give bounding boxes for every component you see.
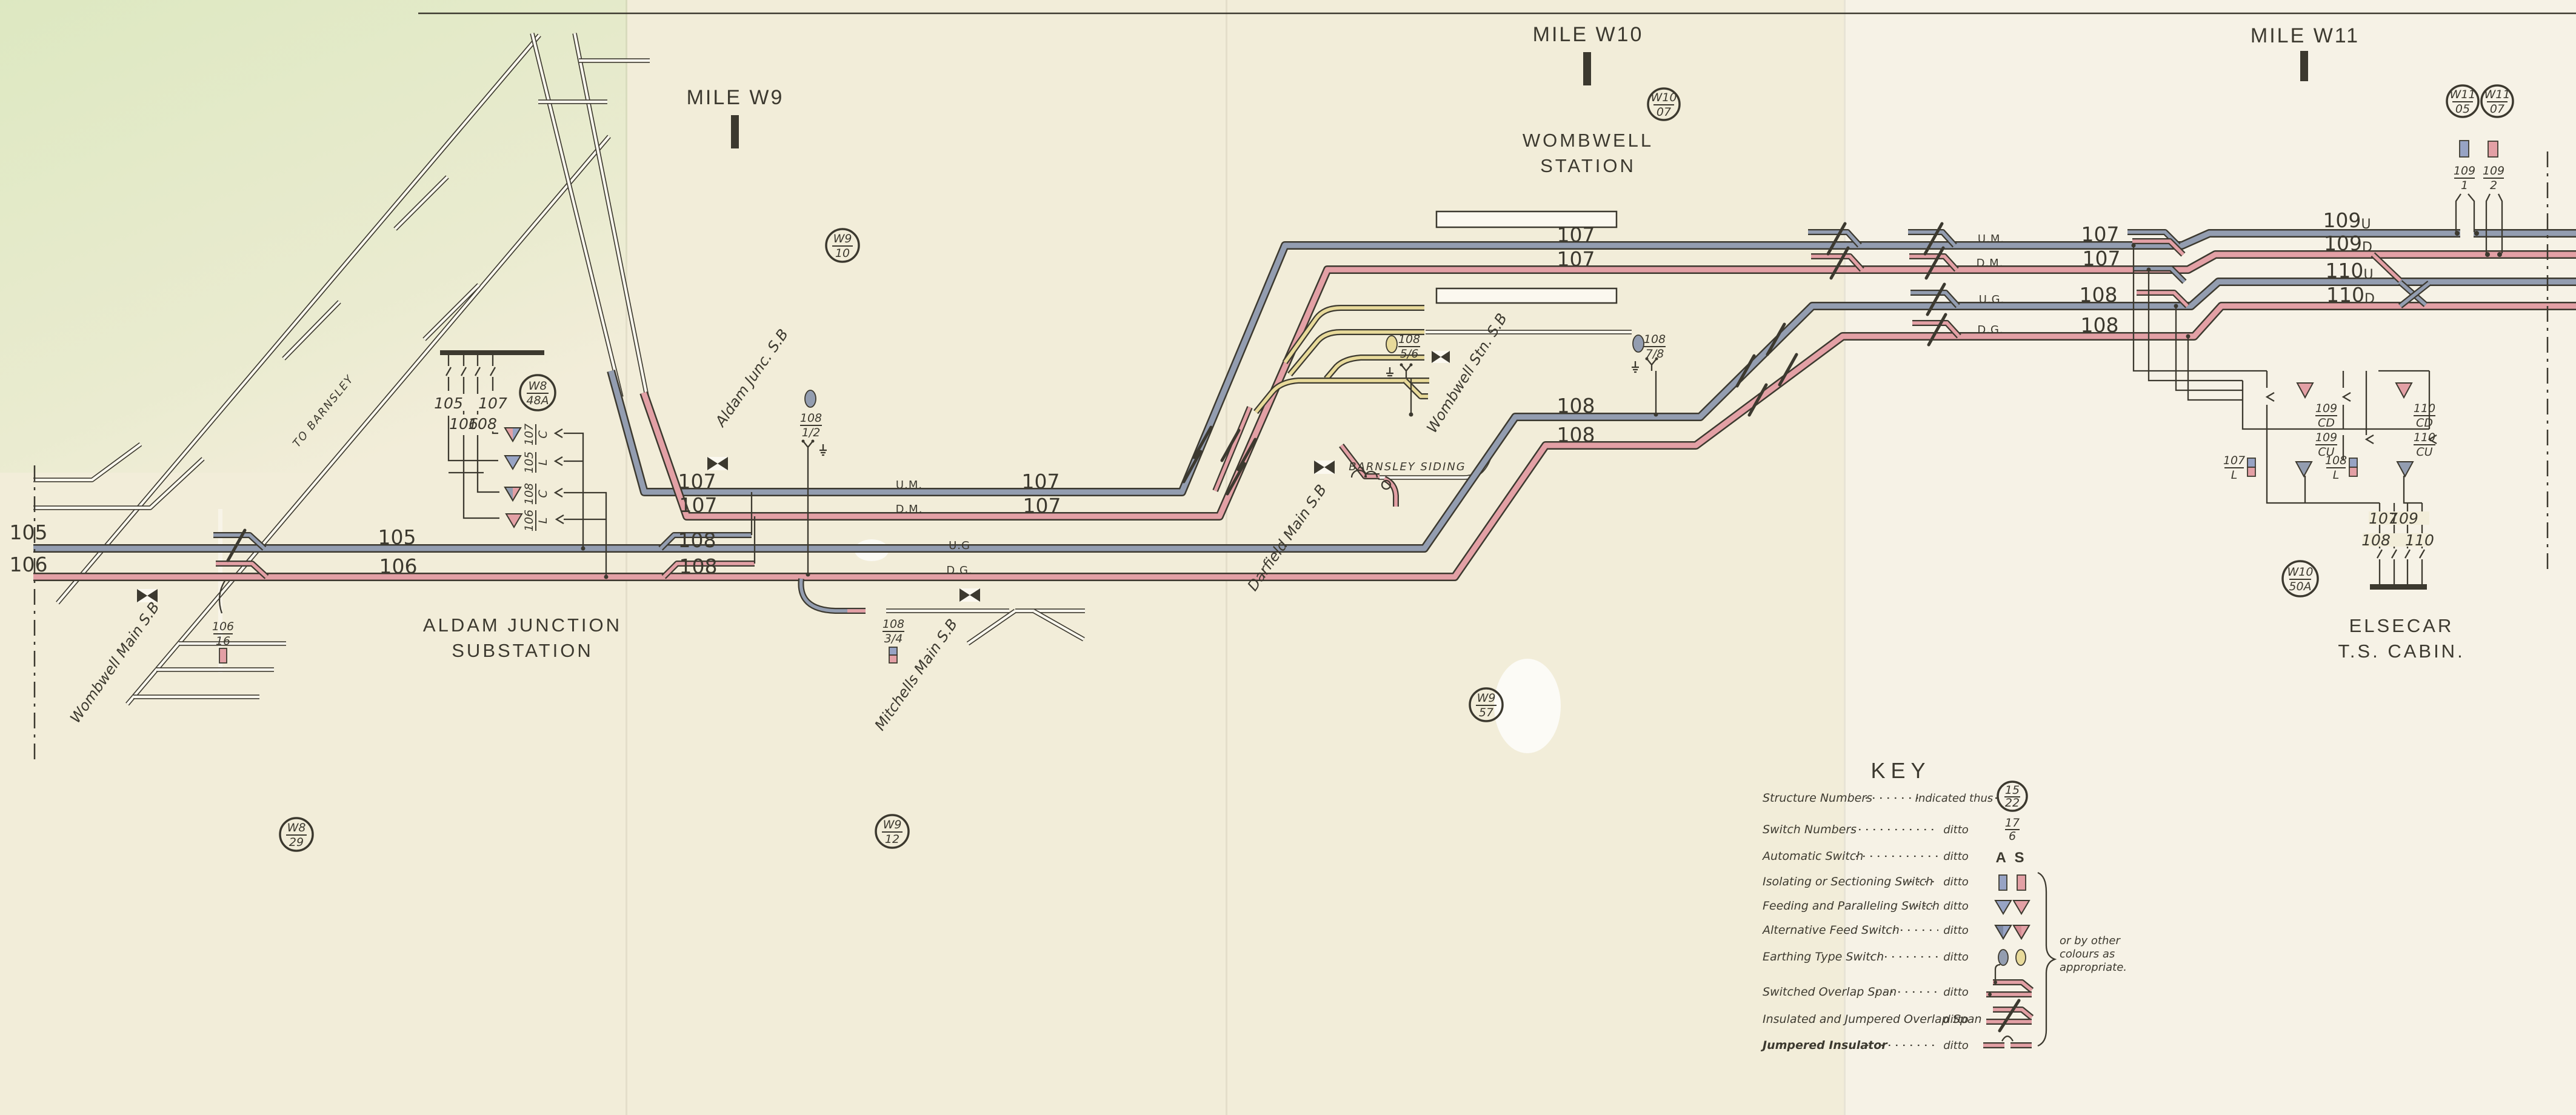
key-automatic-switch-sample: A S [1995,850,2026,866]
key-row-label: Feeding and Paralleling Switch [1763,899,1940,913]
svg-text:57: 57 [1479,706,1493,719]
key-ditto: ditto [1943,1013,1969,1026]
switch-number: 2 [2490,179,2497,192]
key-row-label: Jumpered Insulator [1760,1039,1888,1052]
key-indicated-thus: Indicated thus [1915,792,1994,805]
svg-text:W11: W11 [2450,88,2476,101]
svg-text:C: C [536,430,550,439]
isolating-switch-icon [2488,141,2498,157]
svg-text:108: 108 [2325,454,2347,467]
track-name: D.G. [1977,324,2003,336]
svg-text:L: L [536,518,550,524]
earthing-switch-icon [1998,950,2008,965]
switch-number: 110CU [2414,431,2435,459]
svg-text:CD: CD [2416,416,2433,430]
fold-line [626,0,627,1115]
svg-text:C: C [536,490,550,498]
svg-text:W10: W10 [2287,565,2314,579]
svg-text:L: L [2231,468,2238,482]
svg-text:109: 109 [2315,431,2337,444]
earthing-switch-icon [1633,335,1644,352]
switch-number: 109CD [2315,402,2337,430]
key-row-label: Structure Numbers [1763,791,1872,805]
key-title: KEY [1870,758,1930,783]
isolating-switch-icon [2349,467,2357,476]
isolating-switch-icon [219,648,227,663]
key-row-label: Automatic Switch [1761,850,1863,863]
svg-text:W8: W8 [287,821,306,834]
signalbox-icon [137,589,158,602]
switch-number: 7/8 [1646,347,1664,361]
switch-number: 108 [883,617,904,631]
substation-name: SUBSTATION [452,640,593,661]
signalbox-icon [707,457,728,470]
track-name: U.M. [1978,233,2004,245]
track-number: 106 [10,553,48,576]
substation-feeder-label: 107 [478,394,507,412]
busbar [2370,584,2427,590]
track-name: D.M. [1977,257,2004,270]
isolating-switch-icon [2017,875,2026,890]
svg-text:L: L [2333,468,2340,482]
svg-text:107: 107 [522,424,536,445]
key-ditto: ditto [1943,876,1969,888]
switch-108-12: 108 1/2 [800,411,822,439]
milepost-label: MILE W11 [2251,24,2360,47]
key-note: appropriate. [2060,961,2127,974]
electrification-diagram: 105 107 106 108 107C 105L 108C 106L 106 [0,0,2576,1115]
svg-text:15: 15 [2005,784,2020,797]
key-ditto: ditto [1943,824,1969,836]
isolating-switch-icon [889,647,897,655]
switch-number: 16 [216,634,230,648]
track-number: 108 [679,554,718,578]
earthing-switch-icon [2016,950,2026,965]
track-name: U.M. [896,479,923,491]
track-number: 108 [1557,394,1595,418]
switch-number: 109 [2454,164,2475,178]
track-number: 106 [379,554,418,578]
svg-text:110: 110 [2414,402,2435,415]
svg-text:W10: W10 [1651,91,1677,104]
svg-text:10: 10 [835,247,850,260]
fold-line [1226,0,1227,1115]
milepost-label: MILE W10 [1533,23,1644,46]
track-number: 107 [1023,494,1061,518]
paper-damage-blob [1494,659,1561,753]
track-name: D.G. [946,564,972,577]
key-ditto: ditto [1943,986,1969,999]
switch-108-78: 108 7/8 [1644,333,1666,361]
track-number: 108 [2080,283,2118,307]
track-number: 108 [2081,313,2119,337]
cabin-feeder-label: 109 [2389,510,2418,527]
isolating-switch-icon [2349,458,2357,467]
isolating-switch-icon [1999,875,2007,890]
cabin-name: ELSECAR [2349,615,2454,636]
key-note: colours as [2060,948,2115,960]
svg-text:50A: 50A [2289,580,2311,593]
substation-feeder-label: 105 [434,394,463,412]
switch-number: 1/2 [802,426,821,439]
track-number: 107 [2081,222,2120,246]
svg-text:W9: W9 [1477,691,1496,705]
svg-text:W9: W9 [833,232,852,245]
svg-text:05: 05 [2455,102,2470,116]
barnsley-siding-label: BARNSLEY SIDING [1349,461,1466,473]
key-row-label: Switch Numbers [1763,823,1857,836]
signalbox-icon [1432,351,1450,363]
cabin-feeder-label: 108 [2361,531,2391,549]
svg-text:29: 29 [289,836,304,849]
track-number: 107 [678,470,716,493]
cabin-name: T.S. CABIN. [2338,641,2464,662]
key-note: or by other [2060,934,2121,947]
svg-text:106: 106 [522,510,536,531]
switch-number: 1 [2461,179,2468,192]
isolating-switch-icon [2247,467,2255,476]
milepost-tick [731,115,739,148]
track-number: 107 [1557,223,1595,247]
svg-text:17: 17 [2005,816,2020,830]
switch-number: 5/6 [1400,347,1419,361]
switch-number: 108 [1398,333,1420,346]
svg-text:108: 108 [522,483,536,505]
busbar [440,350,544,355]
substation-name: ALDAM JUNCTION [423,614,622,636]
track-number: 107 [2083,247,2121,270]
milepost-label: MILE W9 [687,86,784,109]
substation-feeder-label: 108 [468,415,497,433]
isolating-switch-icon [2247,458,2255,467]
milepost-tick [2300,51,2308,81]
svg-text:07: 07 [2490,102,2504,116]
svg-text:107: 107 [2223,454,2245,467]
switch-number: 106 [212,620,234,633]
switch-number: 108 [800,411,822,425]
svg-text:CD: CD [2318,416,2335,430]
switch-number: 3/4 [884,632,903,645]
station-name: STATION [1540,155,1636,176]
fold-line [1844,0,1846,1115]
isolating-switch-icon [889,655,897,663]
svg-text:48A: 48A [526,394,549,407]
diagram-canvas: 105 107 106 108 107C 105L 108C 106L 106 [0,0,2576,1115]
switch-number: 109 [2483,164,2504,178]
key-row-label: Earthing Type Switch [1763,950,1884,964]
svg-text:110: 110 [2414,431,2435,444]
svg-text:W9: W9 [883,818,902,831]
key-ditto: ditto [1943,1039,1969,1052]
cabin-feeder-label: 110 [2405,531,2434,549]
svg-text:12: 12 [885,833,899,846]
svg-text:W11: W11 [2484,88,2511,101]
svg-text:W8: W8 [529,379,547,393]
svg-text:105: 105 [522,451,536,473]
svg-text:L: L [536,459,550,466]
key-ditto: ditto [1943,924,1969,937]
signalbox-icon [959,588,980,602]
track-number: 107 [1557,247,1595,271]
key-ditto: ditto [1943,850,1969,863]
switch-number: 110CD [2414,402,2435,430]
svg-text:6: 6 [2009,830,2016,843]
key-ditto: ditto [1943,900,1969,913]
track-number: 108 [1557,423,1595,447]
track-number: 105 [10,521,48,544]
track-name: U.G [949,539,970,552]
isolating-switch-icon [2460,141,2469,157]
station-platform [1436,288,1617,303]
earthing-switch-icon [1386,336,1397,353]
track-name: U.G. [1979,293,2005,306]
signalbox-icon [1314,461,1335,474]
key-row-label: Alternative Feed Switch [1761,924,1900,937]
svg-text:CU: CU [2416,445,2432,459]
track-number: 105 [378,525,416,549]
earthing-switch-icon [805,390,816,407]
key-row-label: Switched Overlap Span [1763,985,1897,999]
track-name: D.M. [896,503,923,516]
key-ditto: ditto [1943,951,1969,964]
switch-108-56: 108 5/6 [1398,333,1420,361]
track-number: 107 [679,493,718,517]
track-number: 107 [1022,470,1060,493]
svg-text:07: 07 [1657,105,1671,119]
station-name: WOMBWELL [1523,130,1653,151]
switch-number: 108 [1644,333,1666,346]
svg-text:22: 22 [2005,796,2020,810]
svg-text:109: 109 [2315,402,2337,415]
key-row-label: Isolating or Sectioning Switch [1763,875,1933,888]
track-number: 108 [678,528,716,552]
milepost-tick [1583,52,1591,85]
